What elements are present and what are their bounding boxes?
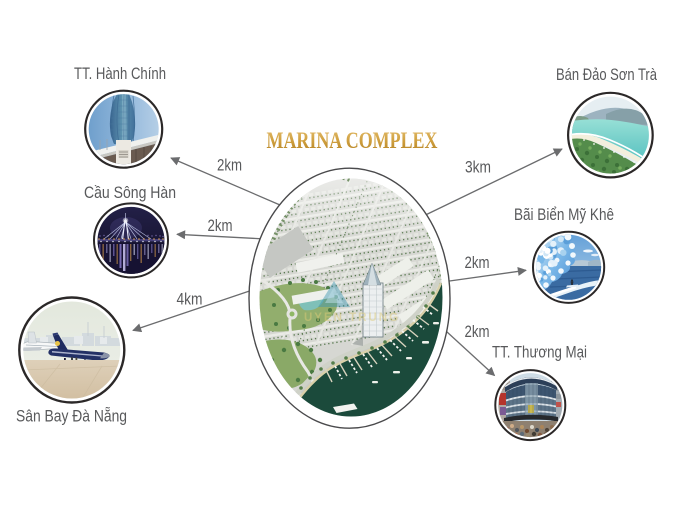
svg-text:Bãi Biển Mỹ Khê: Bãi Biển Mỹ Khê (514, 206, 614, 224)
svg-text:2km: 2km (217, 157, 242, 175)
svg-text:3km: 3km (465, 159, 491, 177)
svg-text:UYEN TRUNG: UYEN TRUNG (304, 312, 400, 324)
svg-text:Sân Bay Đà Nẵng: Sân Bay Đà Nẵng (16, 407, 127, 426)
svg-text:Bán Đảo Sơn Trà: Bán Đảo Sơn Trà (556, 66, 658, 84)
svg-text:2km: 2km (465, 254, 490, 272)
svg-text:2km: 2km (208, 217, 233, 235)
svg-text:2km: 2km (465, 323, 490, 341)
svg-text:MARINA COMPLEX: MARINA COMPLEX (267, 128, 438, 154)
svg-text:Cầu Sông Hàn: Cầu Sông Hàn (84, 184, 176, 202)
svg-text:TT. Hành Chính: TT. Hành Chính (74, 65, 166, 83)
svg-text:4km: 4km (177, 291, 203, 309)
svg-text:TT. Thương Mại: TT. Thương Mại (492, 344, 587, 362)
